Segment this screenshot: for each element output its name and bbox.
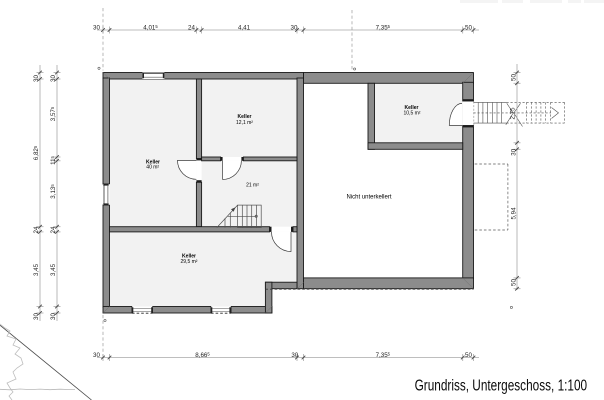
- svg-text:50: 50: [465, 352, 472, 359]
- svg-text:4,41: 4,41: [238, 24, 251, 31]
- svg-text:21 m²: 21 m²: [246, 182, 259, 188]
- svg-text:Nicht unterkellert: Nicht unterkellert: [346, 194, 391, 200]
- svg-text:24: 24: [50, 226, 57, 233]
- svg-text:3,45: 3,45: [33, 263, 40, 276]
- svg-text:30: 30: [291, 24, 298, 31]
- svg-text:Grundriss, Untergeschoss, 1:10: Grundriss, Untergeschoss, 1:100: [415, 378, 587, 395]
- svg-text:3,45: 3,45: [50, 263, 57, 276]
- svg-text:50: 50: [465, 24, 472, 31]
- svg-text:2,75: 2,75: [510, 107, 517, 120]
- svg-text:50: 50: [511, 279, 518, 286]
- svg-text:30: 30: [50, 313, 57, 320]
- svg-text:40 m²: 40 m²: [146, 164, 159, 170]
- svg-text:30: 30: [33, 75, 40, 82]
- svg-text:30: 30: [33, 313, 40, 320]
- svg-text:30: 30: [50, 75, 57, 82]
- svg-text:29,5 m²: 29,5 m²: [181, 259, 198, 265]
- svg-text:50: 50: [511, 74, 518, 81]
- svg-text:24: 24: [188, 24, 195, 31]
- svg-text:24: 24: [33, 226, 40, 233]
- svg-text:30: 30: [291, 352, 298, 359]
- svg-text:10,5 m²: 10,5 m²: [404, 111, 421, 117]
- svg-text:30: 30: [93, 24, 100, 31]
- svg-text:5,94: 5,94: [511, 207, 518, 220]
- svg-text:12,1 m²: 12,1 m²: [236, 120, 253, 126]
- svg-text:30: 30: [93, 352, 100, 359]
- svg-text:30: 30: [511, 148, 518, 155]
